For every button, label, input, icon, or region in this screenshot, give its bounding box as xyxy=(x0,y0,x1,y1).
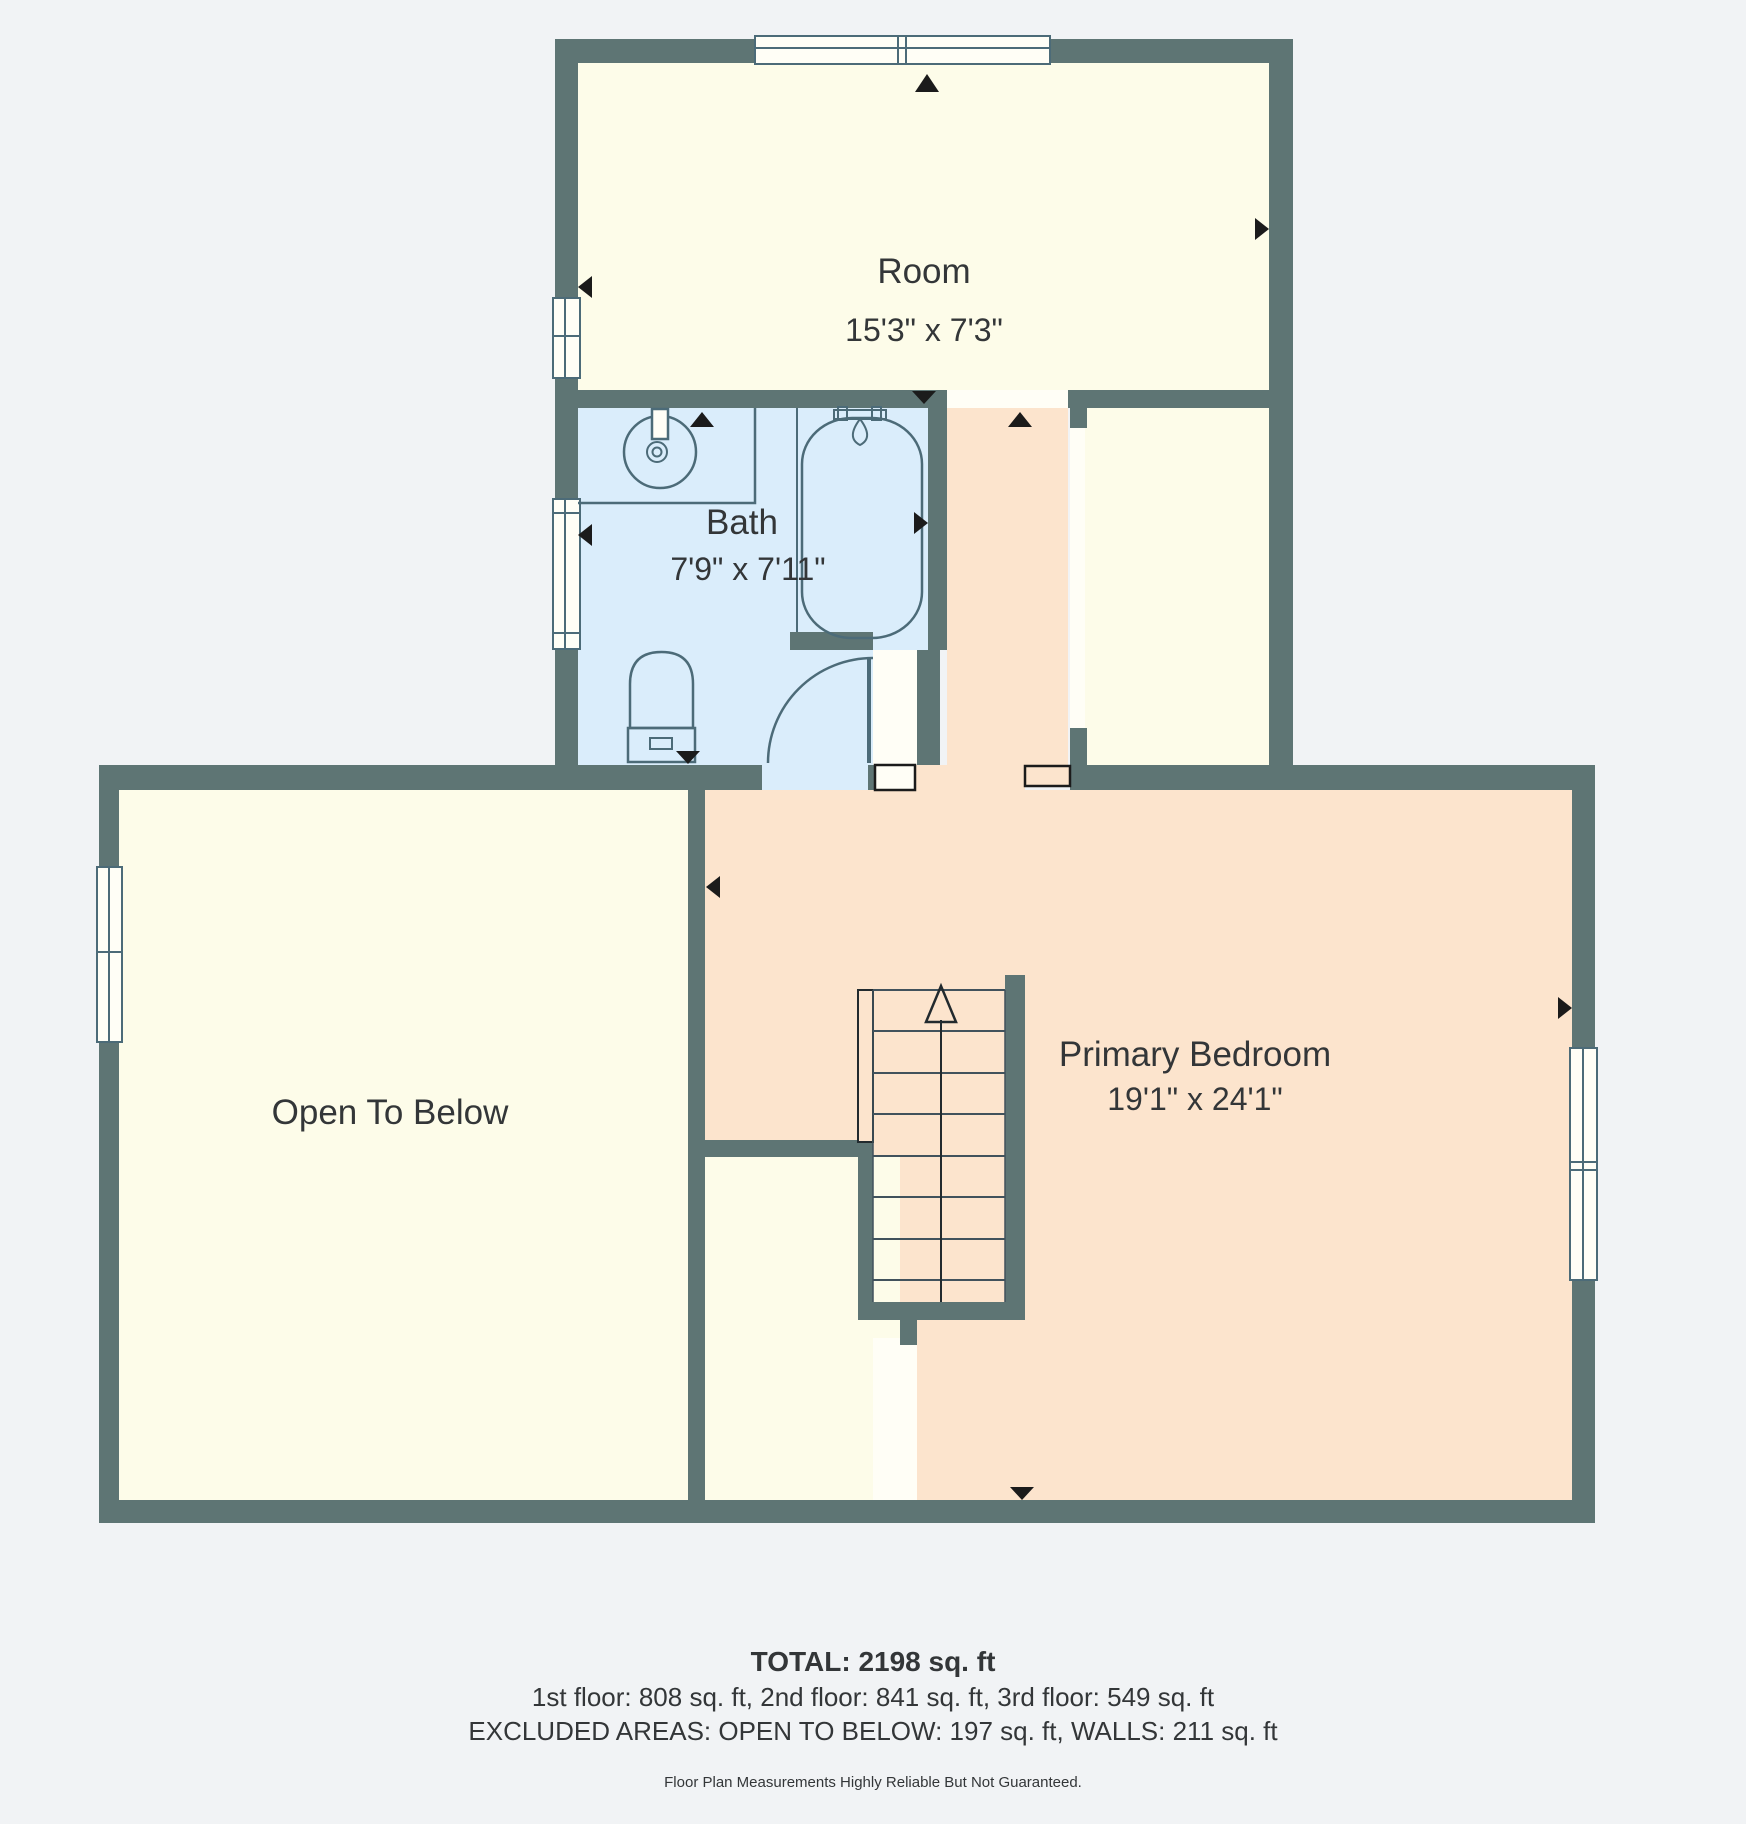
opening-bath-door-nook xyxy=(873,650,917,765)
room-label-bath: Bath xyxy=(706,503,778,542)
opening-bath-doorway xyxy=(762,765,868,790)
floor-plan-page: Room 15'3" x 7'3" Bath 7'9" x 7'11" Open… xyxy=(0,0,1746,1824)
wall-bath-nook-right xyxy=(917,650,940,765)
wall-small-room-top xyxy=(705,1140,873,1157)
sink-faucet-icon xyxy=(652,409,668,439)
summary-floors: 1st floor: 808 sq. ft, 2nd floor: 841 sq… xyxy=(532,1682,1215,1712)
opening-small-room-doorway xyxy=(873,1338,917,1500)
threshold-bath-door xyxy=(875,765,915,790)
window-bath-west xyxy=(553,499,580,649)
wall-mid-horizontal-left xyxy=(99,765,762,790)
wall-right-room-stub-top xyxy=(1070,408,1087,428)
room-label-open-to-below: Open To Below xyxy=(272,1093,509,1132)
floor-plan: Room 15'3" x 7'3" Bath 7'9" x 7'11" Open… xyxy=(0,0,1746,1824)
summary-excluded-areas: EXCLUDED AREAS: OPEN TO BELOW: 197 sq. f… xyxy=(468,1716,1278,1746)
wall-stairs-left xyxy=(858,1142,873,1320)
wall-stairs-right xyxy=(1005,975,1025,1320)
stairs-rail xyxy=(858,990,873,1142)
room-dims-top-room: 15'3" x 7'3" xyxy=(845,312,1003,348)
wall-mid-horizontal-right xyxy=(1070,765,1595,790)
wall-tub-alcove-right xyxy=(928,390,947,650)
window-top-room-west xyxy=(553,298,580,378)
threshold-hallway-opening xyxy=(1025,766,1070,786)
room-fill-hallway xyxy=(947,408,1068,765)
room-fill-open-to-below xyxy=(119,790,688,1500)
wall-top-section-right xyxy=(1269,39,1293,765)
window-top-room-north xyxy=(755,36,1050,64)
room-dims-primary-bedroom: 19'1" x 24'1" xyxy=(1107,1081,1283,1117)
wall-stairs-bottom xyxy=(858,1302,1025,1320)
opening-hallway-to-right-room xyxy=(1070,428,1085,728)
wall-room-bottom-right-segment xyxy=(1068,390,1269,408)
wall-room-bottom-left-segment xyxy=(555,390,947,408)
wall-open-to-below-divider xyxy=(688,790,705,1500)
opening-room-to-hallway xyxy=(947,390,1068,408)
room-label-primary-bedroom: Primary Bedroom xyxy=(1059,1035,1331,1074)
room-dims-bath: 7'9" x 7'11" xyxy=(670,551,825,587)
summary-disclaimer: Floor Plan Measurements Highly Reliable … xyxy=(664,1774,1082,1791)
wall-bottom xyxy=(99,1500,1595,1523)
opening-hallway-to-bedroom xyxy=(915,765,1025,790)
wall-small-room-right-stub xyxy=(900,1320,917,1345)
summary-total: TOTAL: 2198 sq. ft xyxy=(751,1646,996,1677)
room-fill-right-room xyxy=(1085,408,1269,765)
wall-right-room-stub-bottom xyxy=(1070,728,1087,765)
room-label-top-room: Room xyxy=(877,252,970,291)
